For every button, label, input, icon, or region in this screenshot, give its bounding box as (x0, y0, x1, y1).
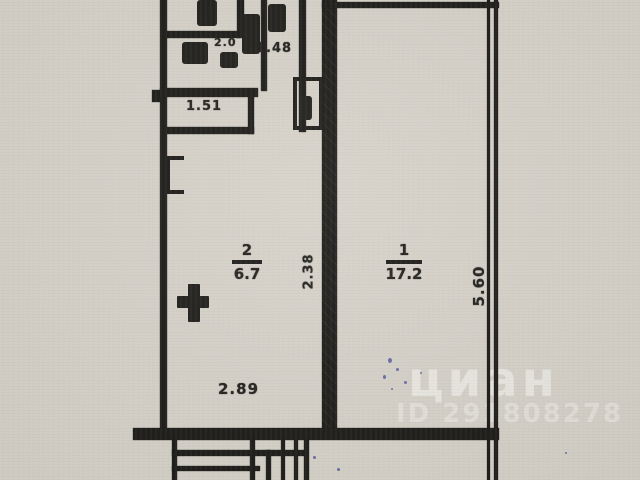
room-2-area: 6.7 (225, 265, 269, 283)
wall-left-nub (152, 90, 160, 102)
wall-party (322, 0, 337, 438)
wall-right-inner (487, 0, 490, 480)
ink-speck (388, 358, 392, 363)
wall-bottom (133, 428, 499, 440)
wall-left (160, 0, 167, 438)
stove-symbol-crossbar (177, 296, 209, 308)
ink-speck (396, 368, 399, 371)
ink-speck (337, 468, 340, 471)
wall-hall-stub (248, 95, 254, 134)
boiler-fixture (268, 4, 286, 32)
dimension-bath-width: 1.48 (256, 41, 292, 56)
wall-hall-bottom (166, 127, 254, 134)
dimension-room1-depth: 5.60 (470, 254, 488, 318)
dimension-hall-width: 1.51 (186, 99, 222, 114)
ink-speck (420, 372, 422, 374)
ink-speck (313, 456, 316, 459)
balcony-line (266, 450, 271, 480)
balcony-line (281, 440, 285, 480)
balcony-line (172, 466, 260, 471)
wall-room1-top (322, 2, 499, 8)
balcony-line (250, 440, 255, 480)
closet (166, 156, 184, 194)
wall-right-outer (494, 0, 498, 480)
dimension-wc-width: 2.0 (214, 36, 237, 49)
room-1-label: 1 17.2 (380, 241, 428, 283)
room-1-fraction-bar (386, 260, 422, 264)
wall-bath-bottom (160, 88, 258, 97)
room-2-fraction-bar (232, 260, 262, 264)
balcony-wall-left (172, 440, 177, 480)
room-1-area: 17.2 (380, 265, 428, 283)
watermark-id: ID 291808278 (396, 399, 623, 429)
balcony-line (172, 450, 308, 456)
balcony-wall-right (304, 440, 309, 480)
room-2-label: 2 6.7 (225, 241, 269, 283)
dimension-room2-width: 2.38 (302, 242, 317, 302)
balcony-line (294, 440, 298, 480)
sink-fixture (182, 42, 208, 64)
ink-speck (391, 388, 393, 390)
ink-speck (404, 381, 407, 384)
floor-plan-scan: циан ID 291808278 1.48 1.51 2.0 2.38 5.6… (0, 0, 640, 480)
ink-speck (383, 375, 386, 379)
dimension-room2-bottom-width: 2.89 (218, 380, 259, 398)
room-1-number: 1 (380, 241, 428, 259)
ink-speck (565, 452, 567, 454)
tub-fixture (220, 52, 238, 68)
toilet-fixture (197, 0, 217, 26)
vent-shaft-fixture (299, 96, 312, 120)
room-2-number: 2 (225, 241, 269, 259)
